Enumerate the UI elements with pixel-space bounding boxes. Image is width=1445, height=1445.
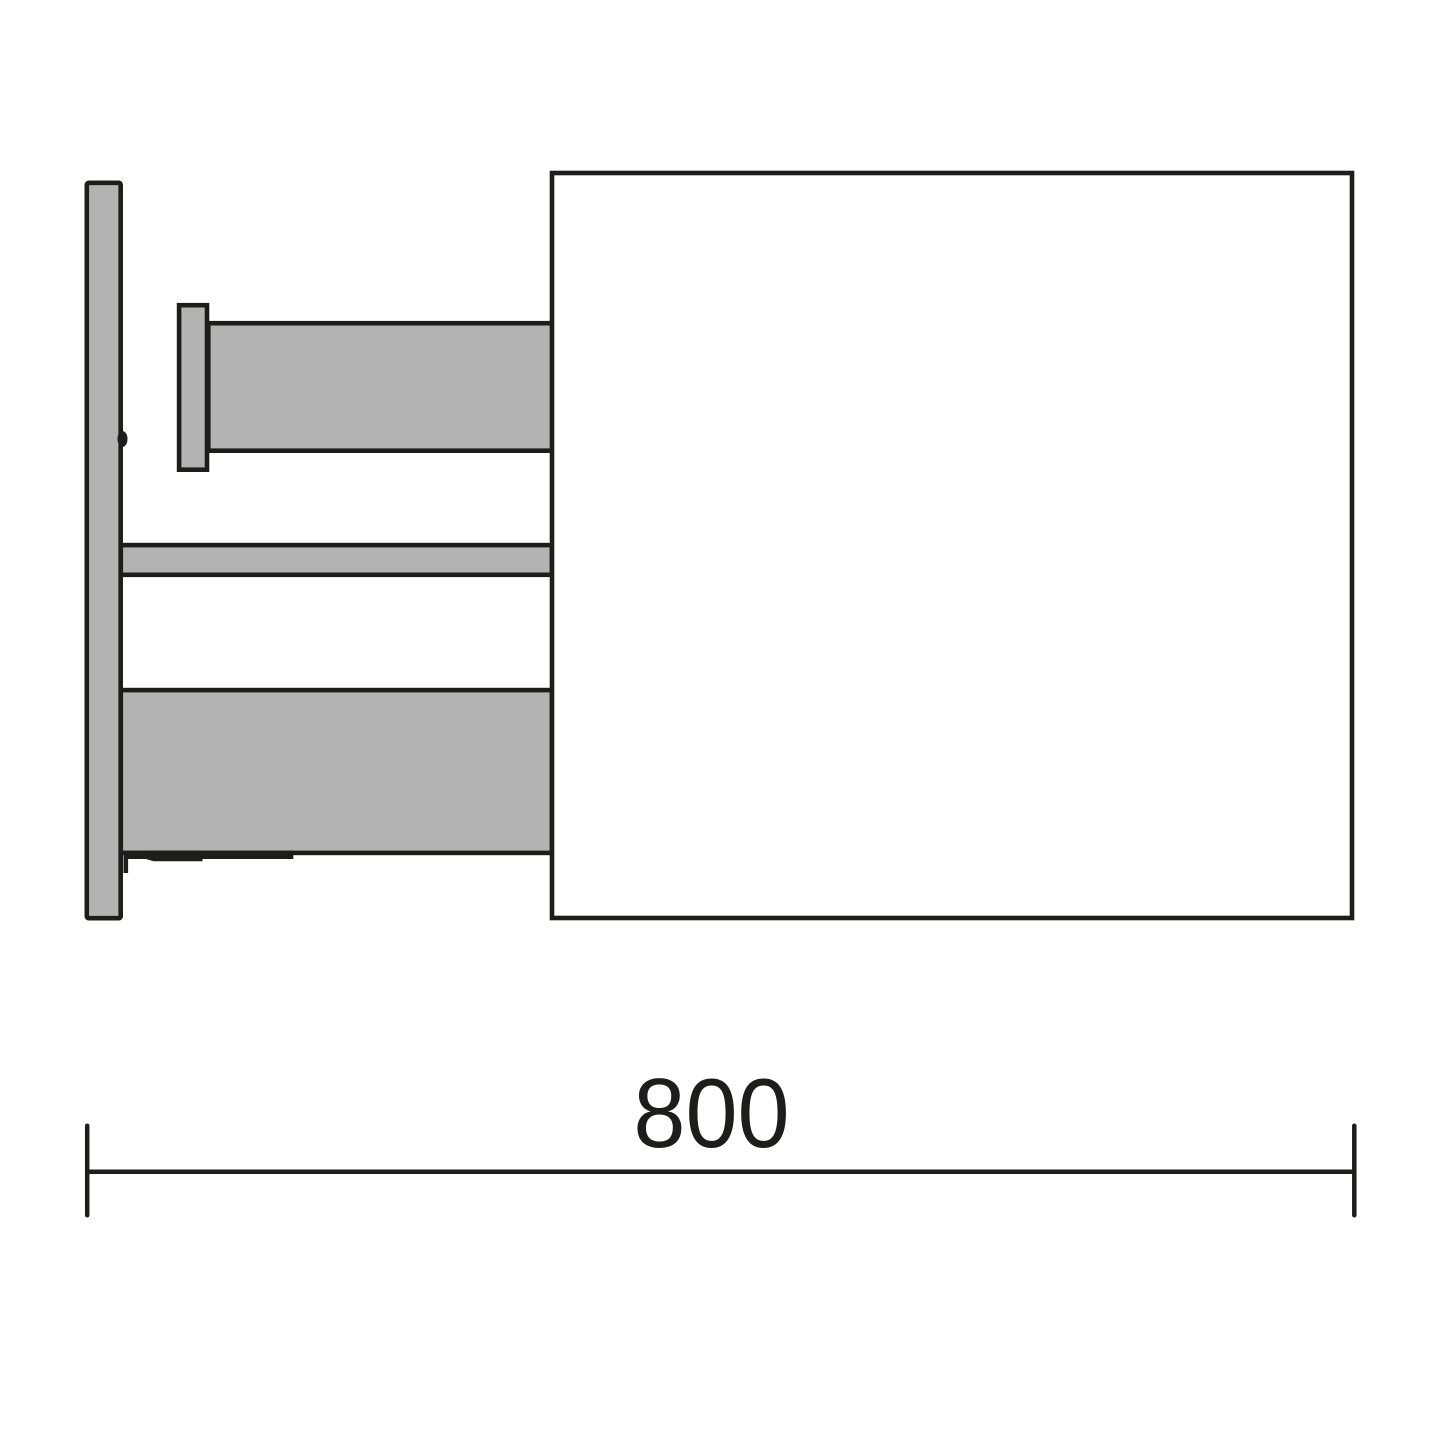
svg-text:800: 800 xyxy=(633,1059,789,1169)
